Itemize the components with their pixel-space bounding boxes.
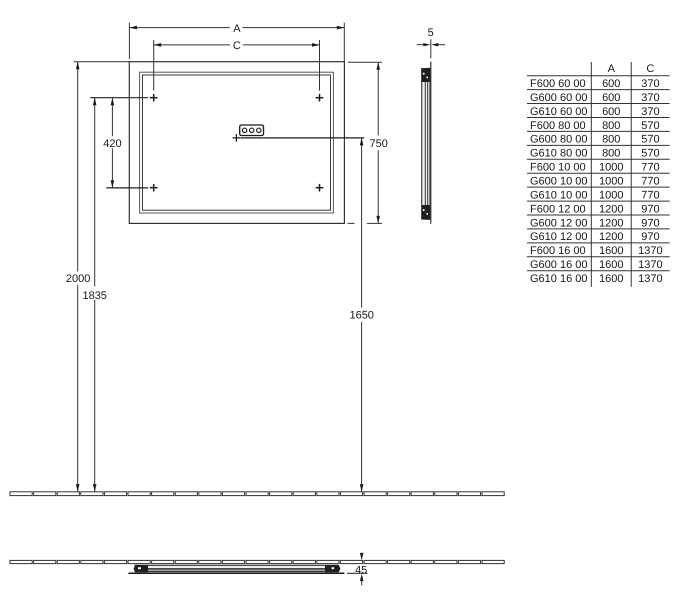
svg-text:5: 5 [428,27,434,39]
svg-text:1200: 1200 [599,217,623,229]
svg-text:770: 770 [641,176,659,188]
svg-text:A: A [608,63,616,75]
svg-text:800: 800 [602,120,620,132]
svg-text:1370: 1370 [638,245,662,257]
svg-text:1000: 1000 [599,176,623,188]
svg-text:370: 370 [641,92,659,104]
svg-text:600: 600 [602,106,620,118]
svg-text:370: 370 [641,78,659,90]
svg-text:F600 12 00: F600 12 00 [530,203,586,215]
svg-text:2000: 2000 [66,273,90,285]
svg-text:800: 800 [602,134,620,146]
svg-text:1600: 1600 [599,259,623,271]
svg-text:970: 970 [641,203,659,215]
svg-text:570: 570 [641,148,659,160]
svg-text:1370: 1370 [638,273,662,285]
svg-text:970: 970 [641,231,659,243]
svg-text:1200: 1200 [599,203,623,215]
svg-text:600: 600 [602,78,620,90]
svg-text:F600 10 00: F600 10 00 [530,162,586,174]
svg-text:1600: 1600 [599,273,623,285]
svg-text:A: A [233,23,241,35]
svg-text:750: 750 [370,138,388,150]
svg-text:G610 60 00: G610 60 00 [530,106,588,118]
svg-text:1000: 1000 [599,162,623,174]
svg-text:G610 10 00: G610 10 00 [530,189,588,201]
svg-text:1835: 1835 [82,290,106,302]
svg-text:C: C [646,63,654,75]
svg-text:45: 45 [355,564,367,576]
svg-text:1200: 1200 [599,231,623,243]
svg-text:420: 420 [103,138,121,150]
svg-text:570: 570 [641,134,659,146]
svg-text:770: 770 [641,162,659,174]
svg-text:1000: 1000 [599,189,623,201]
svg-text:1600: 1600 [599,245,623,257]
svg-text:1650: 1650 [349,309,373,321]
svg-text:370: 370 [641,106,659,118]
svg-text:F600 16 00: F600 16 00 [530,245,586,257]
svg-text:G600 60 00: G600 60 00 [530,92,588,104]
svg-text:C: C [233,40,241,52]
svg-text:G600 12 00: G600 12 00 [530,217,588,229]
svg-text:G610 80 00: G610 80 00 [530,148,588,160]
svg-text:G600 16 00: G600 16 00 [530,259,588,271]
svg-text:G600 10 00: G600 10 00 [530,176,588,188]
svg-text:1370: 1370 [638,259,662,271]
svg-text:570: 570 [641,120,659,132]
svg-text:770: 770 [641,189,659,201]
svg-text:800: 800 [602,148,620,160]
svg-text:F600 60 00: F600 60 00 [530,78,586,90]
svg-text:F600 80 00: F600 80 00 [530,120,586,132]
svg-text:G610 16 00: G610 16 00 [530,273,588,285]
svg-text:G600 80 00: G600 80 00 [530,134,588,146]
svg-text:G610 12 00: G610 12 00 [530,231,588,243]
svg-text:970: 970 [641,217,659,229]
svg-text:600: 600 [602,92,620,104]
